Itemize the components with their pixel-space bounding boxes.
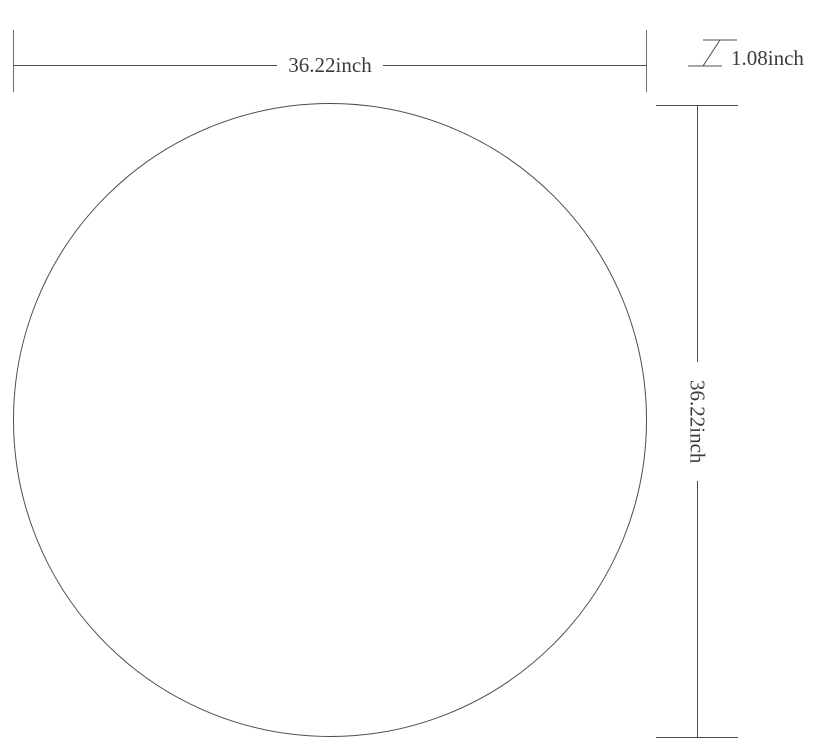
thickness-dim-label: 1.08inch <box>731 48 804 69</box>
dimension-diagram: 36.22inch 1.08inch 36.22inch <box>0 0 820 754</box>
height-dim-line-bottom <box>697 481 698 738</box>
height-dimension: 36.22inch <box>685 105 709 738</box>
width-dim-line-right <box>383 65 647 66</box>
width-dim-line-left <box>13 65 277 66</box>
width-dimension: 36.22inch <box>13 52 647 78</box>
width-dim-label: 36.22inch <box>277 55 382 76</box>
height-dim-label: 36.22inch <box>687 362 708 481</box>
height-dim-line-top <box>697 105 698 362</box>
circle-outline <box>13 103 647 737</box>
